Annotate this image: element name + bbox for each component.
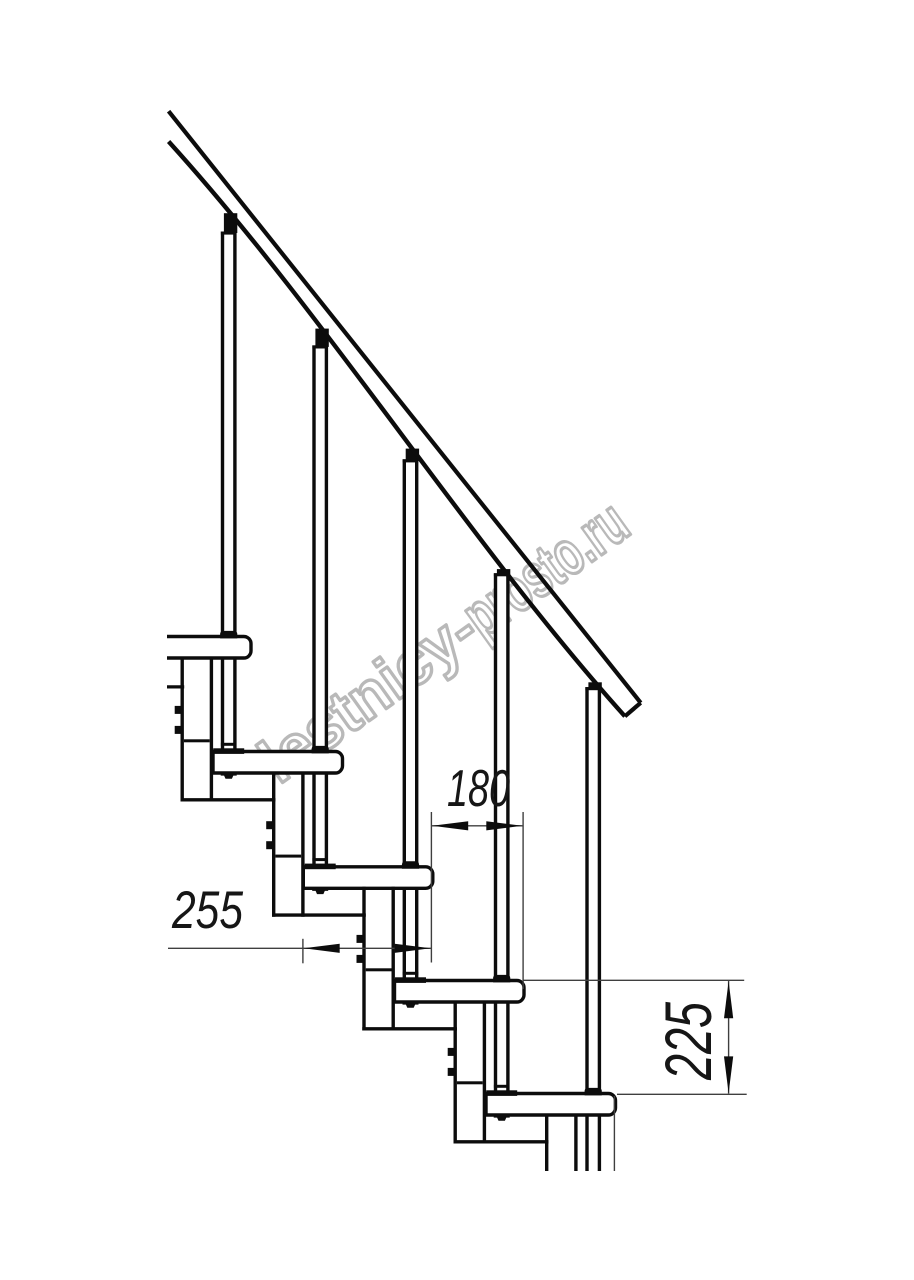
svg-text:225: 225 (651, 1002, 725, 1081)
svg-text:255: 255 (171, 881, 243, 940)
svg-text:180: 180 (447, 760, 510, 818)
